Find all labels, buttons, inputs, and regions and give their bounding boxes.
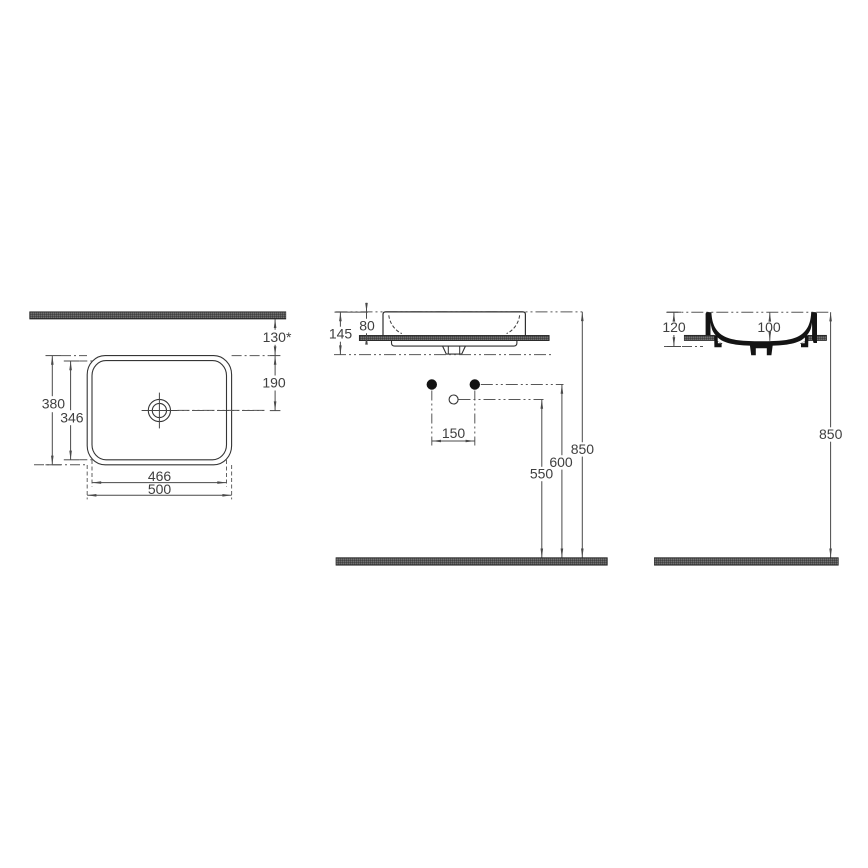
svg-text:600: 600 xyxy=(549,454,573,470)
svg-text:130*: 130* xyxy=(263,329,292,345)
svg-text:100: 100 xyxy=(757,319,781,335)
svg-text:850: 850 xyxy=(819,426,843,442)
svg-text:145: 145 xyxy=(329,326,353,342)
svg-text:500: 500 xyxy=(148,481,172,497)
svg-text:150: 150 xyxy=(442,425,466,441)
svg-text:346: 346 xyxy=(60,409,84,425)
svg-text:80: 80 xyxy=(359,318,375,334)
svg-text:190: 190 xyxy=(262,375,286,391)
svg-text:120: 120 xyxy=(662,319,686,335)
svg-text:850: 850 xyxy=(571,441,595,457)
